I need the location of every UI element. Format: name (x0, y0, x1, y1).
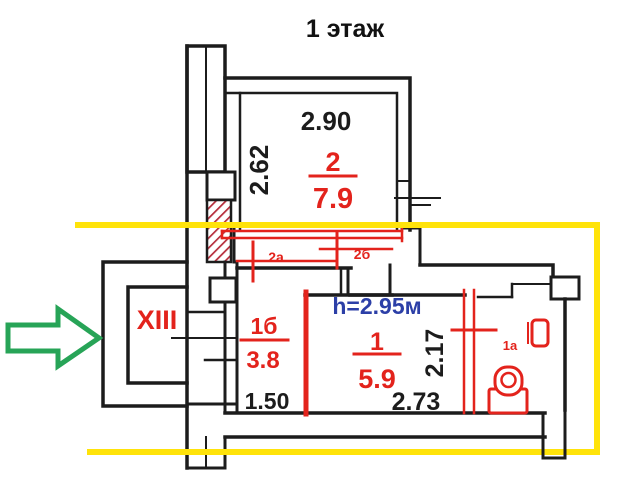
toilet-icon (489, 367, 527, 413)
wall-box-1 (207, 172, 235, 200)
wall-box-2 (210, 278, 236, 302)
room2-depth-dim: 2.62 (244, 145, 274, 196)
floor-plan-page: 1 этаж 2.90 2.62 2 7.9 2а 2б XIII 1б 3.8… (0, 0, 640, 480)
room2-area: 7.9 (313, 183, 353, 215)
room1b-width-dim: 1.50 (245, 388, 290, 414)
room1b-area: 3.8 (246, 347, 279, 374)
room1-depth-dim: 2.17 (421, 329, 449, 378)
floor-plan-drawing: 1 этаж 2.90 2.62 2 7.9 2а 2б XIII 1б 3.8… (0, 0, 640, 480)
corridor-number: XIII (137, 305, 178, 335)
room2-number: 2 (325, 147, 340, 177)
room2-width-dim: 2.90 (301, 106, 352, 136)
room1b-number: 1б (251, 313, 278, 339)
room1a-number: 1а (503, 338, 518, 353)
wall-box-3 (551, 277, 579, 299)
room1-number: 1 (370, 328, 384, 356)
background (0, 0, 640, 480)
ceiling-height-note: h=2.95м (332, 293, 421, 319)
door-mark-2b-label: 2б (354, 246, 371, 262)
page-title: 1 этаж (306, 15, 384, 43)
door-mark-2a-label: 2а (268, 249, 284, 265)
room1-area: 5.9 (358, 364, 396, 394)
room1-width-dim: 2.73 (392, 388, 441, 416)
